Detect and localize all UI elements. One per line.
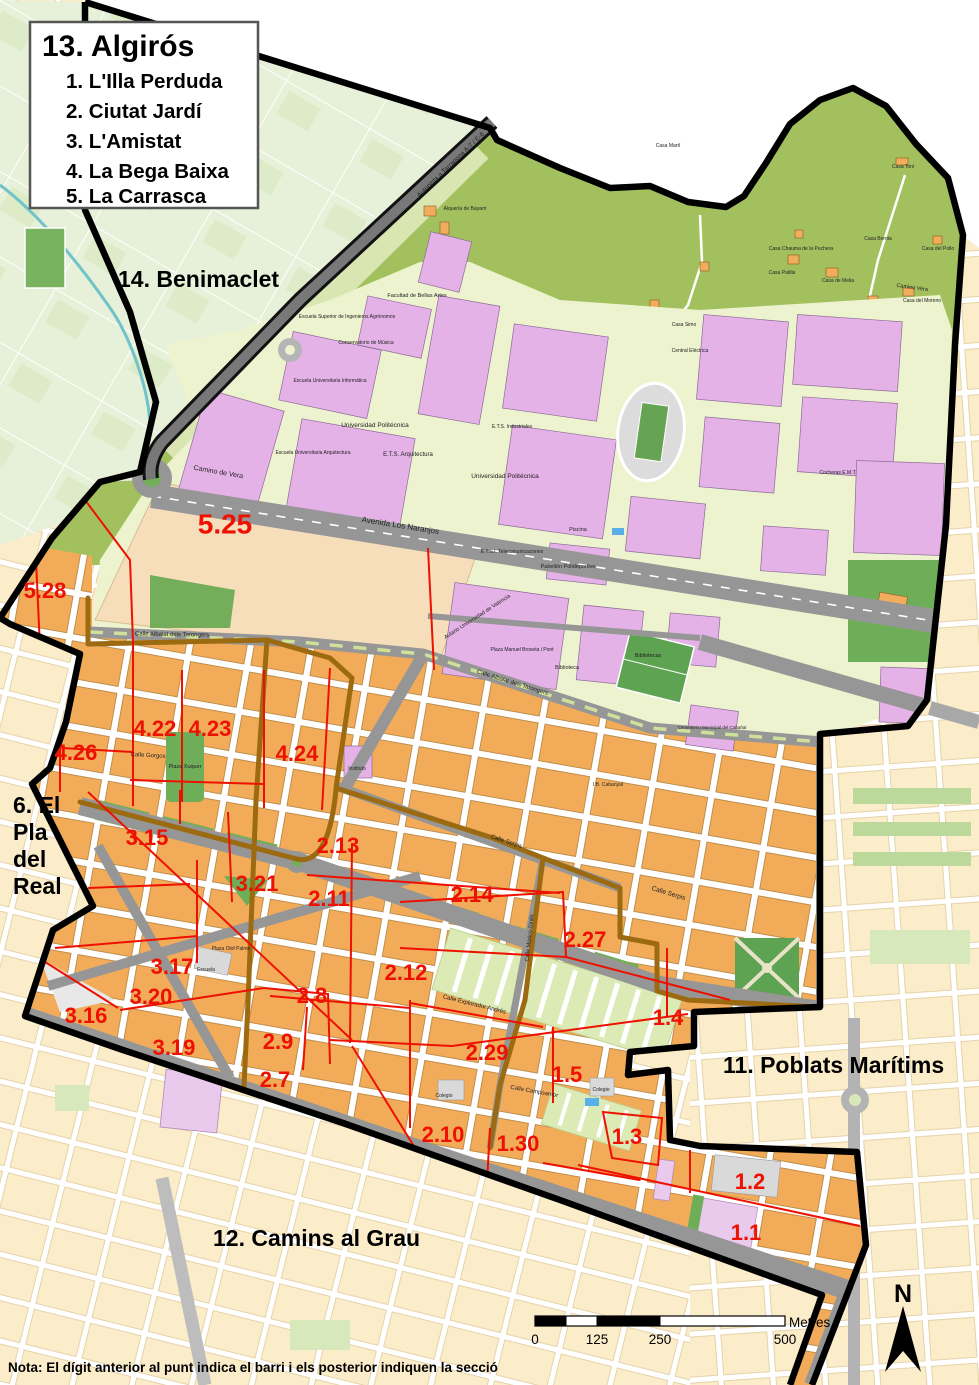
section-label: 4.24	[276, 741, 320, 766]
street-label: Casa del Moreno	[903, 298, 941, 304]
scale-unit: Metres	[789, 1315, 831, 1330]
street-label: E.T.S.I. Telecomunicaciones	[481, 549, 544, 555]
street-label: Escuela Universitaria Informática	[293, 378, 366, 384]
section-label: 1.2	[735, 1169, 766, 1194]
map-title: 13. Algirós	[42, 30, 194, 63]
district-label-pla-del-real: Real	[13, 873, 62, 899]
street-label: Cocheras E.M.T.	[820, 470, 857, 476]
street-label: Escuela	[197, 967, 215, 973]
map-canvas: Autopista a Tarragona A-7 / E-6Camino de…	[0, 0, 979, 1385]
section-label: 1.3	[612, 1124, 643, 1149]
section-label: 2.11	[308, 886, 350, 911]
section-label: 2.12	[385, 960, 428, 985]
legend-item-1: 1. L'Illa Perduda	[66, 70, 223, 93]
street-label: Central Eléctrica	[672, 348, 709, 354]
legend-item-2: 2. Ciutat Jardí	[66, 100, 203, 123]
street-label: Alquería de Bayarri	[444, 206, 487, 212]
section-label: 1.1	[731, 1220, 762, 1245]
section-label: 2.14	[451, 882, 495, 907]
street-label: Casa Chauma de la Puchera	[769, 246, 833, 252]
title-box: 13. Algirós 1. L'Illa Perduda 2. Ciutat …	[30, 22, 258, 208]
street-label: E.T.S. Industriales	[492, 424, 533, 430]
street-label: I.B. Cabanyal	[593, 782, 623, 788]
scale-tick: 125	[586, 1332, 609, 1347]
section-label: 3.17	[151, 954, 194, 979]
street-label: Instituto	[348, 766, 366, 772]
legend-item-5: 5. La Carrasca	[66, 185, 207, 208]
street-label: Casa Toni	[892, 164, 914, 170]
map-screenshot: Autopista a Tarragona A-7 / E-6Camino de…	[0, 0, 979, 1385]
street-label: Escuela Superior de Ingenieros Agrónomos	[299, 314, 396, 320]
section-label: 2.8	[297, 983, 328, 1008]
street-label: Colegio	[593, 1087, 610, 1093]
section-label: 3.15	[126, 825, 169, 850]
street-label: Conservatorio de Música	[338, 340, 394, 346]
section-label: 1.30	[497, 1131, 540, 1156]
district-label-poblats-maritims: 11. Poblats Marítims	[723, 1052, 944, 1078]
scale-tick: 0	[531, 1332, 539, 1347]
section-label: 5.25	[198, 508, 253, 539]
district-label-benimaclet: 14. Benimaclet	[118, 266, 279, 292]
section-label: 2.9	[263, 1029, 294, 1054]
map-note: Nota: El dígit anterior al punt indica e…	[8, 1360, 498, 1375]
scale-tick: 500	[774, 1332, 797, 1347]
section-label: 3.20	[130, 984, 173, 1009]
street-label: Plaza Manuel Broseta i Pont	[490, 647, 554, 653]
section-label: 5.28	[24, 578, 67, 603]
section-label: 2.7	[260, 1067, 291, 1092]
plaza-park	[735, 938, 799, 998]
street-label: Colegio	[436, 1093, 453, 1099]
district-label-camins-al-grau: 12. Camins al Grau	[213, 1225, 420, 1251]
street-label: Casa Patilla	[769, 270, 796, 276]
street-label: Casa Bernia	[864, 236, 892, 242]
section-label: 3.19	[153, 1035, 196, 1060]
street-label: Casa Simo	[672, 322, 697, 328]
section-label: 1.4	[653, 1005, 684, 1030]
street-label: Universidad Politécnica	[471, 473, 539, 480]
legend-item-3: 3. L'Amistat	[66, 130, 182, 153]
street-label: E.T.S. Arquitectura	[383, 452, 433, 458]
section-label: 2.13	[317, 833, 360, 858]
section-label: 2.10	[422, 1122, 465, 1147]
street-label: Casa de Melia	[822, 278, 854, 284]
street-label: Pabellón Polideportivo	[541, 564, 596, 570]
street-label: Plaza Olof Palme	[212, 946, 251, 952]
section-label: 3.21	[236, 871, 279, 896]
street-label: Biblioteca	[555, 665, 580, 671]
street-label: Cementerio Municipal del Cabañal	[678, 725, 747, 730]
section-label: 4.26	[55, 740, 98, 765]
street-label: Escuela Universitaria Arquitectura	[275, 450, 350, 456]
legend-item-4: 4. La Bega Baixa	[66, 160, 230, 183]
street-label: Plaza Xuquer	[168, 764, 201, 770]
street-label: Facultad de Bellas Artes	[387, 293, 447, 299]
district-label-pla-del-real: Pla	[13, 819, 48, 845]
section-label: 1.5	[552, 1062, 583, 1087]
street-label: Bibliotecas	[635, 653, 662, 659]
section-label: 2.29	[466, 1040, 509, 1065]
section-label: 4.22	[134, 716, 177, 741]
street-label: Piscina	[569, 527, 588, 533]
district-label-pla-del-real: del	[13, 846, 46, 872]
street-label: Universidad Politécnica	[341, 422, 409, 429]
section-label: 4.23	[189, 716, 232, 741]
street-label: Casa Martí	[656, 143, 681, 149]
street-label: Casa del Pollo	[922, 246, 954, 252]
section-label: 3.16	[65, 1003, 108, 1028]
district-label-pla-del-real: 6. El	[13, 792, 60, 818]
scale-tick: 250	[649, 1332, 672, 1347]
north-label: N	[894, 1280, 912, 1308]
section-label: 2.27	[564, 927, 607, 952]
